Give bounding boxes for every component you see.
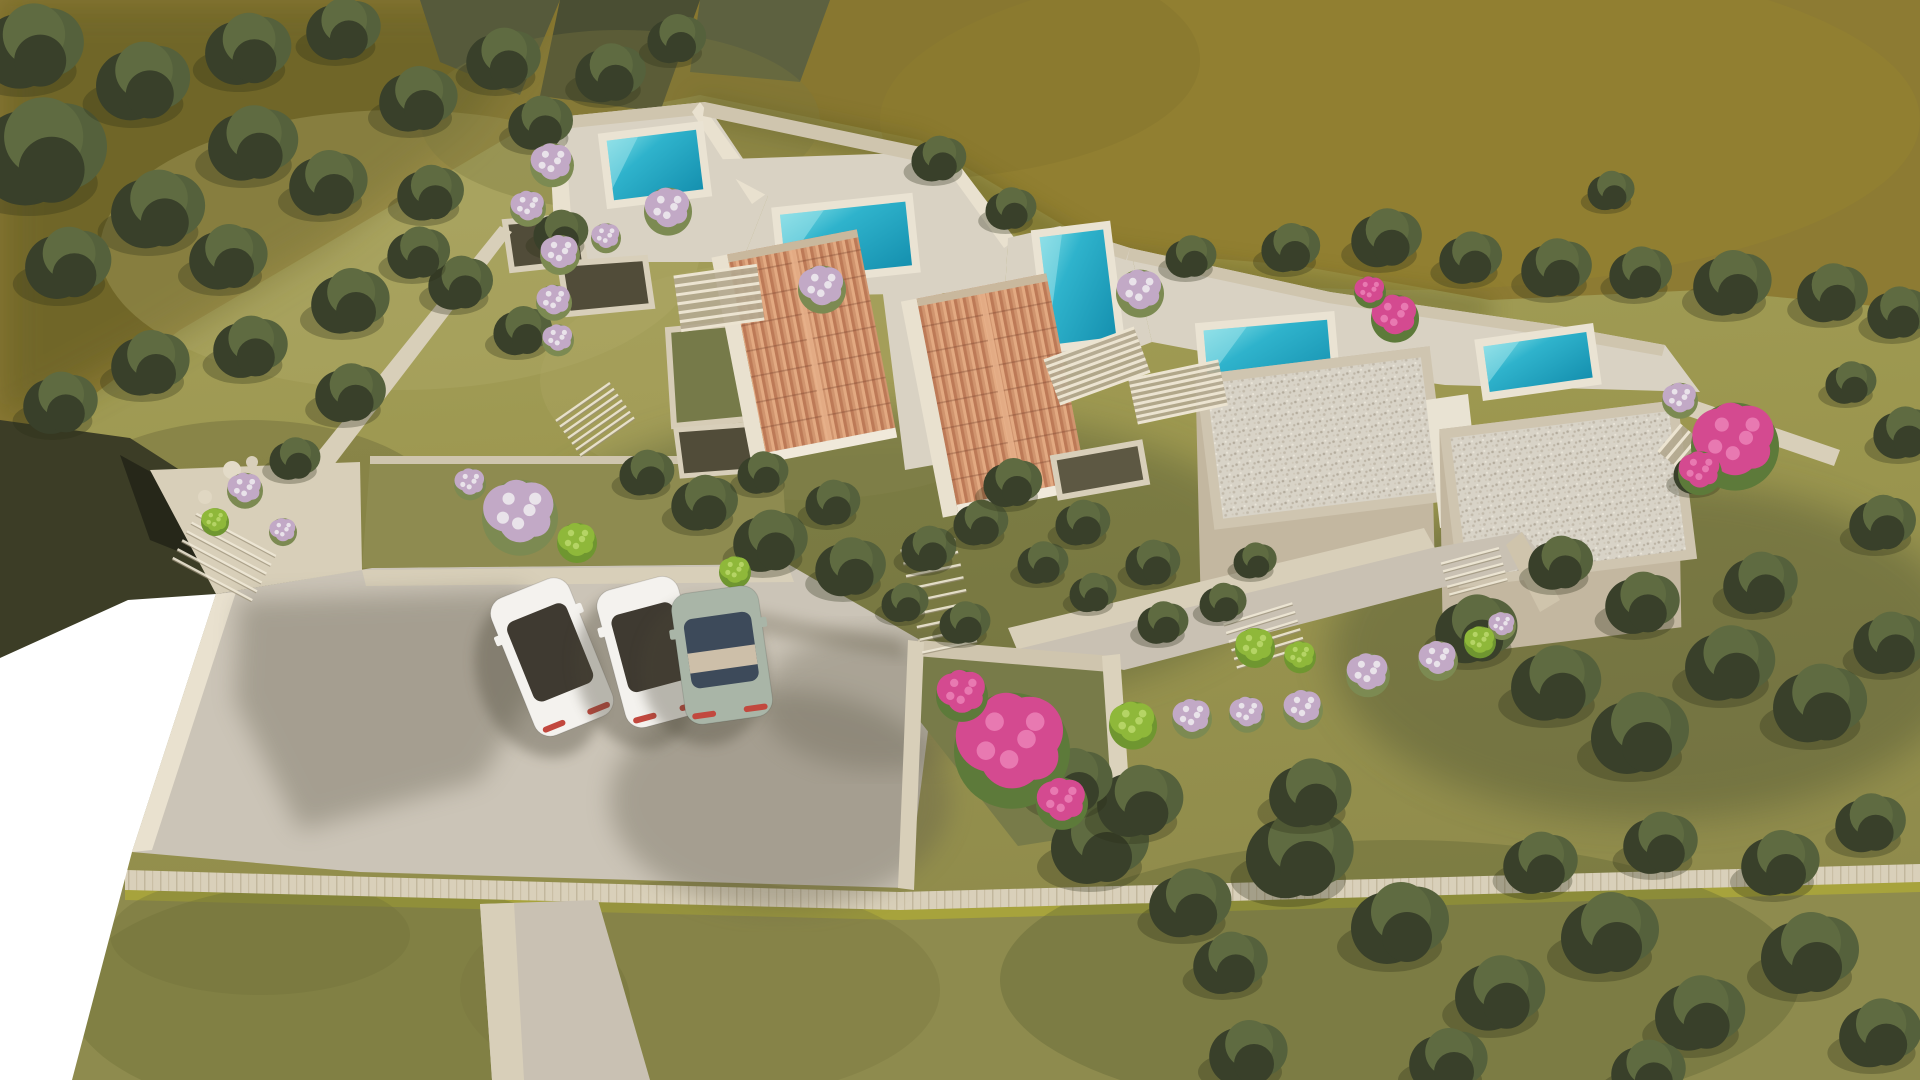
lilac-bush: [269, 518, 297, 546]
green-bush: [557, 523, 597, 563]
green-bush: [1464, 626, 1496, 658]
lilac-bush: [591, 223, 621, 253]
lilac-bush: [1229, 697, 1265, 733]
green-bush: [1109, 702, 1157, 750]
pergola-slats: [674, 265, 765, 330]
lilac-bush: [1662, 383, 1698, 419]
pink-bush: [1036, 778, 1088, 830]
lilac-bush: [540, 235, 580, 275]
car-mirror: [759, 616, 767, 627]
lilac-bush: [227, 473, 263, 509]
lilac-bush: [530, 143, 574, 187]
lilac-bush: [1283, 690, 1323, 730]
lilac-bush: [510, 191, 546, 227]
lilac-bush: [536, 285, 572, 321]
lilac-bush: [798, 266, 846, 314]
green-bush: [1284, 641, 1316, 673]
cube-gravel-top: [1207, 357, 1438, 518]
lilac-bush: [482, 480, 558, 556]
green-bush: [719, 556, 751, 588]
lilac-bush: [454, 468, 486, 500]
pink-bush: [1678, 451, 1722, 495]
aerial-villa-rendering: [0, 0, 1920, 1080]
car-mirror: [669, 629, 677, 640]
pink-bush: [1354, 276, 1386, 308]
lilac-bush: [1346, 653, 1390, 697]
render-canvas: [0, 0, 1920, 1080]
rock: [246, 456, 258, 468]
green-bush: [1235, 628, 1275, 668]
rock: [198, 490, 212, 504]
lilac-bush: [644, 188, 692, 236]
lilac-bush: [1116, 270, 1164, 318]
lilac-bush: [542, 324, 574, 356]
lilac-bush: [1418, 641, 1458, 681]
lilac-bush: [1172, 699, 1212, 739]
pink-bush: [936, 670, 988, 722]
green-bush: [201, 508, 229, 536]
